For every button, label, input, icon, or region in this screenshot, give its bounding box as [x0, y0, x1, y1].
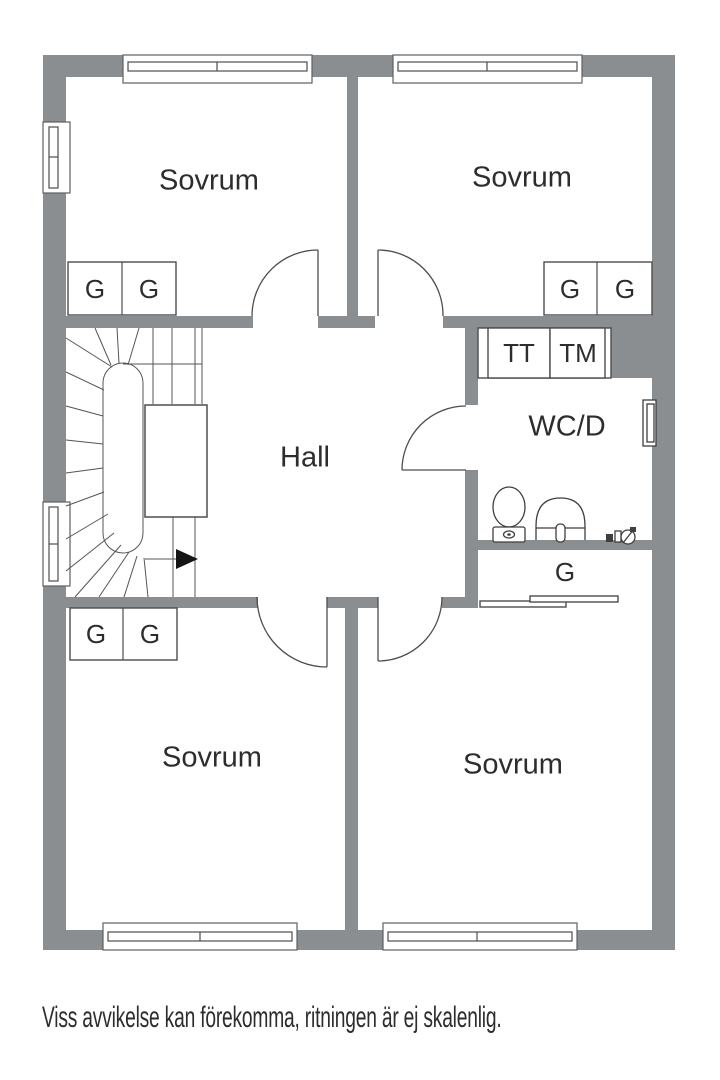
- room-label-bedroom-top-left: Sovrum: [159, 167, 259, 196]
- wardrobe-label: G: [560, 276, 580, 302]
- floor-drain-icon: [606, 527, 636, 544]
- wardrobe-label: G: [139, 276, 159, 302]
- room-label-bedroom-top-right: Sovrum: [472, 164, 572, 193]
- room-label-bedroom-bottom-left: Sovrum: [162, 744, 262, 773]
- wardrobe-label: G: [85, 276, 105, 302]
- door-swing-icon: [378, 597, 442, 661]
- door-swing-icon: [402, 406, 466, 470]
- wall-bathroom-west-lower: [465, 470, 478, 608]
- wall-between-top-bedrooms: [347, 77, 358, 317]
- wall-hall-bottom-left: [66, 597, 258, 608]
- room-label-hall: Hall: [280, 444, 330, 473]
- wardrobe-label: G: [615, 276, 635, 302]
- closet-sliding-doors: [480, 596, 618, 607]
- door-swing-icon: [252, 250, 318, 316]
- wall-under-bedroom-tl: [66, 316, 253, 328]
- toilet-icon: [493, 487, 525, 542]
- exterior-walls: [43, 55, 675, 950]
- room-label-bedroom-bottom-right: Sovrum: [463, 751, 563, 780]
- disclaimer-text: Viss avvikelse kan förekomma, ritningen …: [42, 1001, 502, 1034]
- wall-hall-bottom-center: [327, 597, 378, 608]
- winder-staircase: [66, 328, 207, 597]
- window-icon: [43, 122, 70, 193]
- wall-hall-bottom-right: [442, 597, 477, 608]
- floor-plan-page: Sovrum Sovrum Hall WC/D Sovrum Sovrum TT…: [0, 0, 720, 1080]
- appliance-label-tumble-dryer: TT: [503, 340, 535, 366]
- door-swing-icon: [378, 250, 443, 316]
- stair-newel: [103, 363, 143, 553]
- window-icon: [43, 502, 70, 586]
- floor-plan-drawing: [0, 0, 720, 1080]
- room-label-bathroom: WC/D: [528, 413, 605, 442]
- appliance-label-washing-machine: TM: [559, 340, 597, 366]
- wardrobe-label: G: [140, 621, 160, 647]
- wall-between-bottom-bedrooms: [345, 608, 358, 930]
- window-icon: [123, 55, 312, 83]
- stair-void: [145, 405, 207, 517]
- window-icon: [383, 923, 577, 950]
- window-icon: [393, 55, 582, 83]
- window-icon: [103, 923, 297, 950]
- wall-bathroom-west-upper: [465, 328, 478, 405]
- shaft-block: [611, 328, 652, 378]
- vent-window-icon: [643, 400, 656, 446]
- sink-icon: [536, 498, 585, 542]
- wardrobe-label: G: [86, 621, 106, 647]
- wall-right: [652, 55, 675, 950]
- wall-hall-top-center: [318, 316, 375, 328]
- closet-label: G: [555, 559, 575, 585]
- door-swing-icon: [257, 597, 327, 667]
- wall-under-bedroom-tr: [443, 316, 652, 328]
